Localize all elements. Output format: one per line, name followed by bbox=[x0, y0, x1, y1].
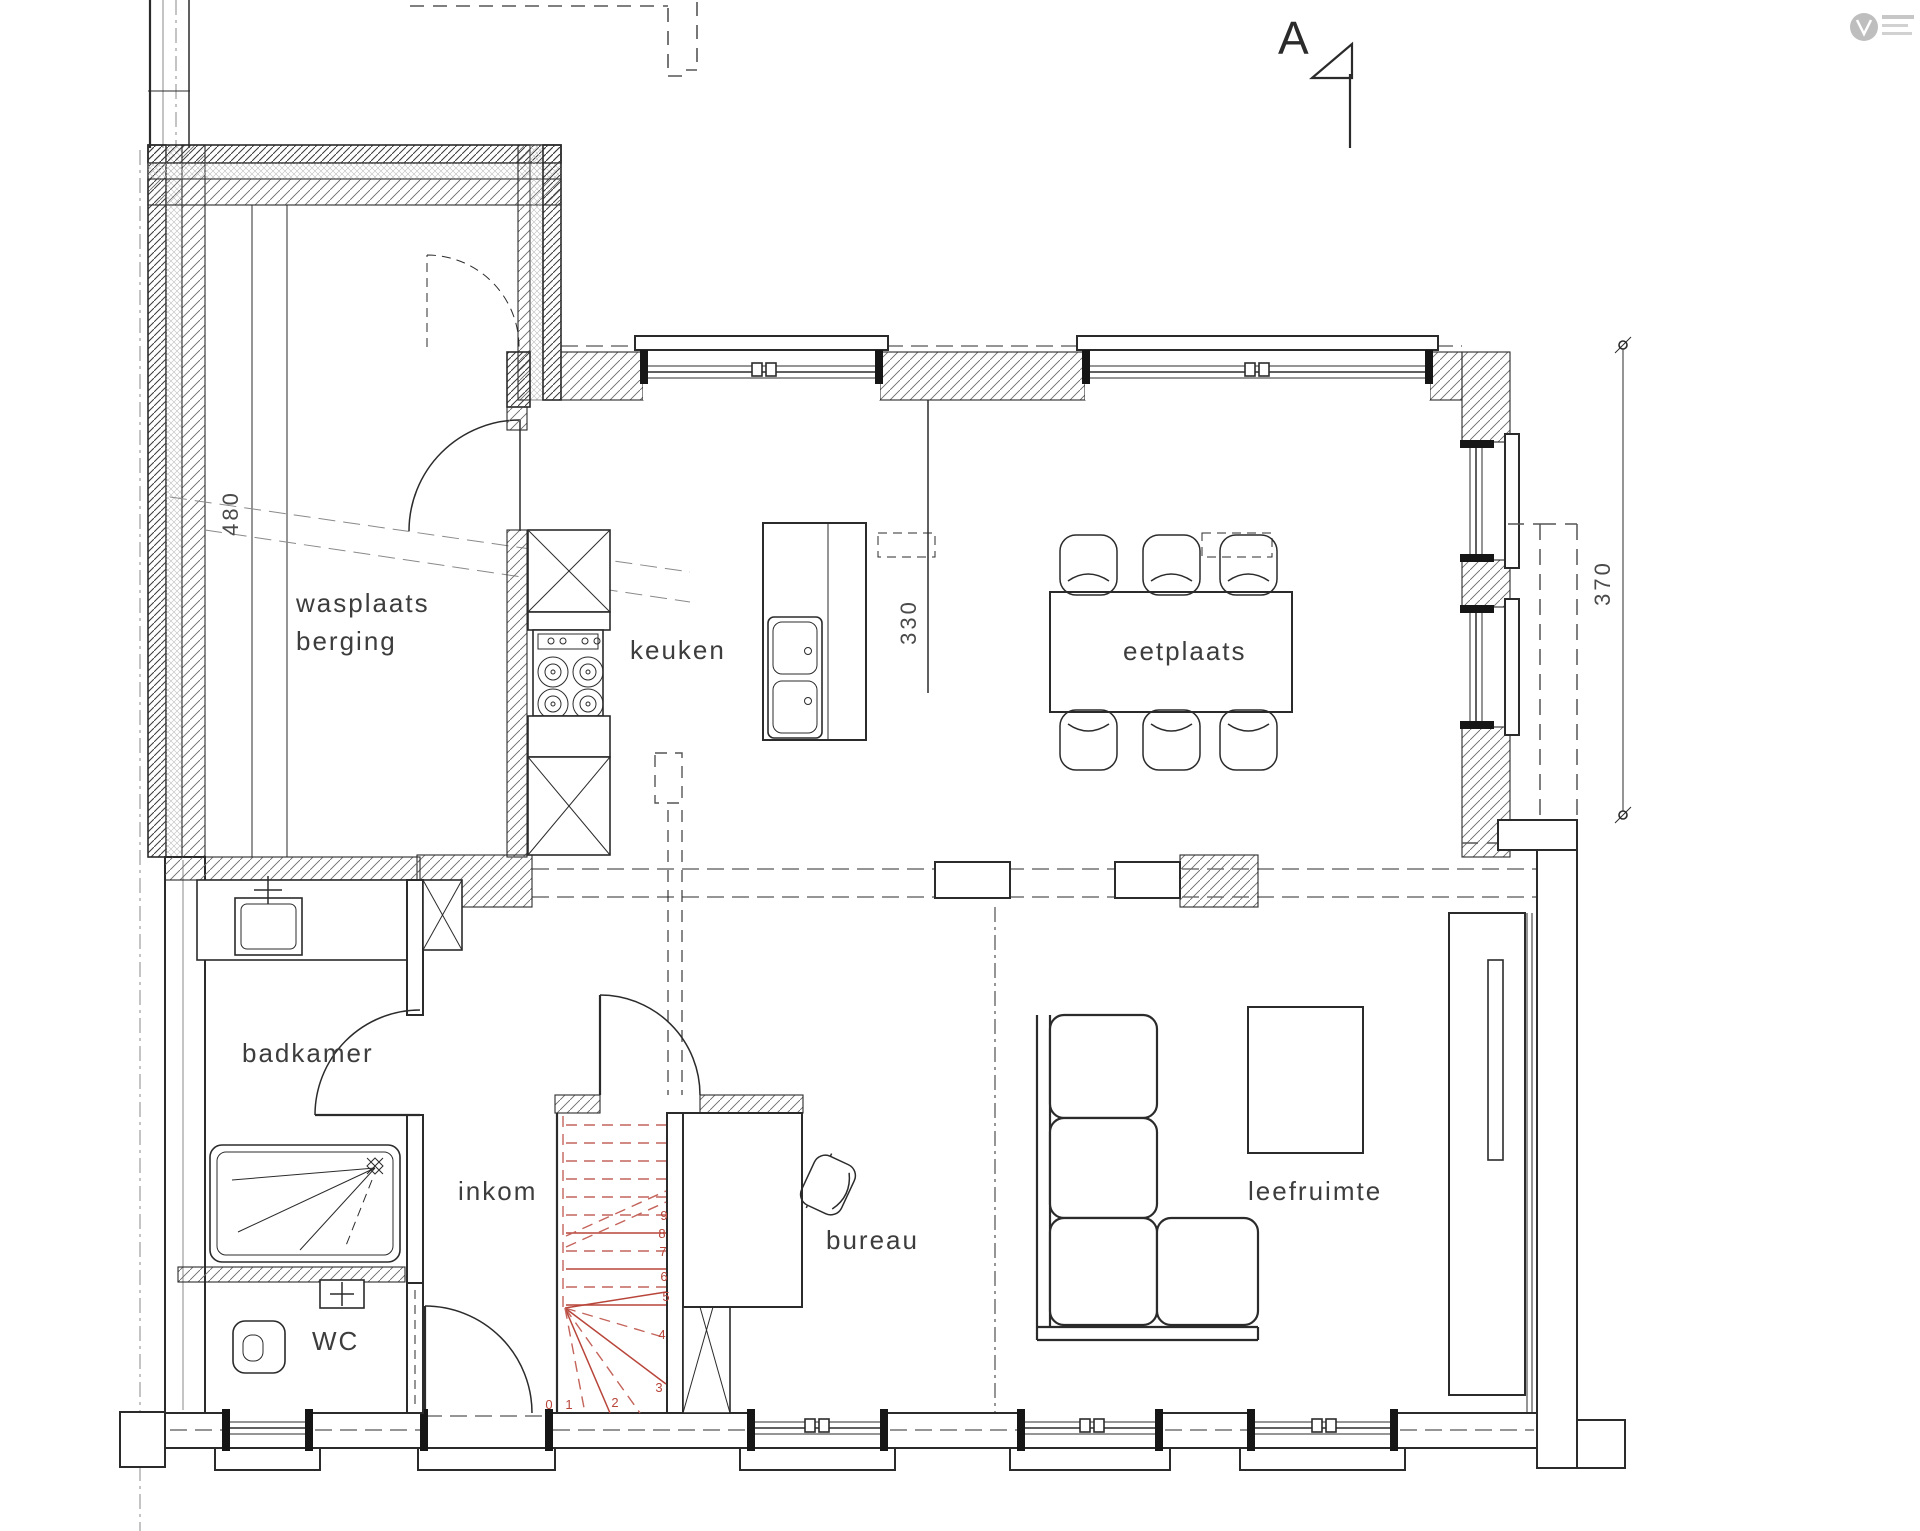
keuken-inkom-door bbox=[600, 995, 700, 1095]
dining-chairs-top bbox=[1060, 535, 1277, 595]
bathroom-vanity bbox=[197, 876, 407, 960]
leefruimte-room: leefruimte bbox=[995, 907, 1532, 1413]
bureau-room: bureau bbox=[683, 1113, 919, 1307]
stove-icon bbox=[533, 630, 603, 719]
wasplaats-label-line2: berging bbox=[296, 626, 397, 656]
dimension-330-line: 330 bbox=[896, 400, 928, 693]
section-marker: A bbox=[1278, 12, 1352, 148]
inkom-cabinet bbox=[423, 880, 462, 950]
floorplan-drawing: A 480 wasplaats bbox=[0, 0, 1920, 1531]
dashed-roof-outline bbox=[410, 2, 697, 76]
window-north-eetplaats bbox=[1077, 336, 1438, 400]
badkamer-label: badkamer bbox=[242, 1038, 374, 1068]
office-chair-icon bbox=[795, 1149, 860, 1222]
wasplaats-walls bbox=[148, 145, 561, 857]
room-label-wasplaats: wasplaats berging bbox=[295, 588, 430, 656]
section-arrow-icon bbox=[1312, 44, 1352, 78]
dining-set: eetplaats bbox=[1050, 533, 1292, 770]
step-number: 3 bbox=[655, 1380, 662, 1395]
step-number: 9 bbox=[660, 1208, 667, 1223]
wasplaats-door-arc bbox=[409, 420, 520, 531]
inkom-label: inkom bbox=[458, 1176, 537, 1206]
wc-sink-icon bbox=[320, 1280, 364, 1308]
window-south-bureau bbox=[740, 1409, 895, 1470]
step-number: 1 bbox=[565, 1397, 572, 1412]
dashed-door-arc bbox=[427, 255, 519, 347]
kitchen-cabinets bbox=[528, 530, 610, 855]
wc-label: WC bbox=[312, 1326, 359, 1356]
tv-cabinet bbox=[1449, 913, 1532, 1413]
side-table bbox=[1248, 1007, 1363, 1153]
window-south-leefruimte-1 bbox=[1010, 1409, 1170, 1470]
dimension-370: 370 bbox=[1590, 560, 1615, 606]
wasplaats-doors bbox=[409, 255, 520, 531]
window-south-wc bbox=[215, 1409, 320, 1470]
dimension-480: 480 bbox=[218, 490, 243, 536]
north-wall bbox=[561, 336, 1462, 400]
window-south-leefruimte-2 bbox=[1240, 1409, 1405, 1470]
left-corner-step bbox=[120, 1412, 165, 1467]
window-east-2 bbox=[1460, 599, 1519, 735]
sink-icon bbox=[768, 617, 822, 738]
eetplaats-label: eetplaats bbox=[1123, 636, 1247, 666]
service-dashed-lines: 480 bbox=[170, 490, 690, 602]
shower-icon bbox=[210, 1145, 400, 1262]
keuken-label: keuken bbox=[630, 635, 726, 665]
toilet-icon bbox=[233, 1321, 285, 1373]
wc-room: WC bbox=[233, 1280, 364, 1373]
window-north-keuken bbox=[635, 336, 888, 400]
window-east-1 bbox=[1460, 434, 1519, 568]
step-number: 2 bbox=[611, 1395, 618, 1410]
junction-beam bbox=[417, 855, 1537, 907]
wasplaats-label-line1: wasplaats bbox=[295, 588, 430, 618]
kitchen-west-wall bbox=[507, 352, 530, 857]
sofa bbox=[1037, 1015, 1258, 1340]
staircase-red: 0 1 2 3 4 5 6 7 8 9 bbox=[545, 1116, 669, 1413]
step-number: 0 bbox=[545, 1397, 552, 1412]
step-number: 6 bbox=[660, 1269, 667, 1284]
step-number: 4 bbox=[658, 1327, 665, 1342]
desk bbox=[683, 1113, 802, 1307]
floorplan-sheet: A 480 wasplaats bbox=[0, 0, 1920, 1531]
architect-logo bbox=[1850, 13, 1914, 41]
dimension-370-line: 370 bbox=[1590, 337, 1631, 823]
step-number: 7 bbox=[659, 1244, 666, 1259]
front-door bbox=[418, 1306, 555, 1470]
dining-chairs-bottom bbox=[1060, 710, 1277, 770]
section-marker-label: A bbox=[1278, 12, 1309, 64]
east-wall-upper bbox=[1460, 352, 1519, 857]
leefruimte-label: leefruimte bbox=[1248, 1176, 1382, 1206]
dimension-330: 330 bbox=[896, 599, 921, 645]
step-number: 8 bbox=[658, 1226, 665, 1241]
right-corner-step bbox=[1577, 1420, 1625, 1468]
step-number: 5 bbox=[662, 1289, 669, 1304]
duct-dashed bbox=[655, 753, 682, 1095]
bureau-label: bureau bbox=[826, 1225, 919, 1255]
